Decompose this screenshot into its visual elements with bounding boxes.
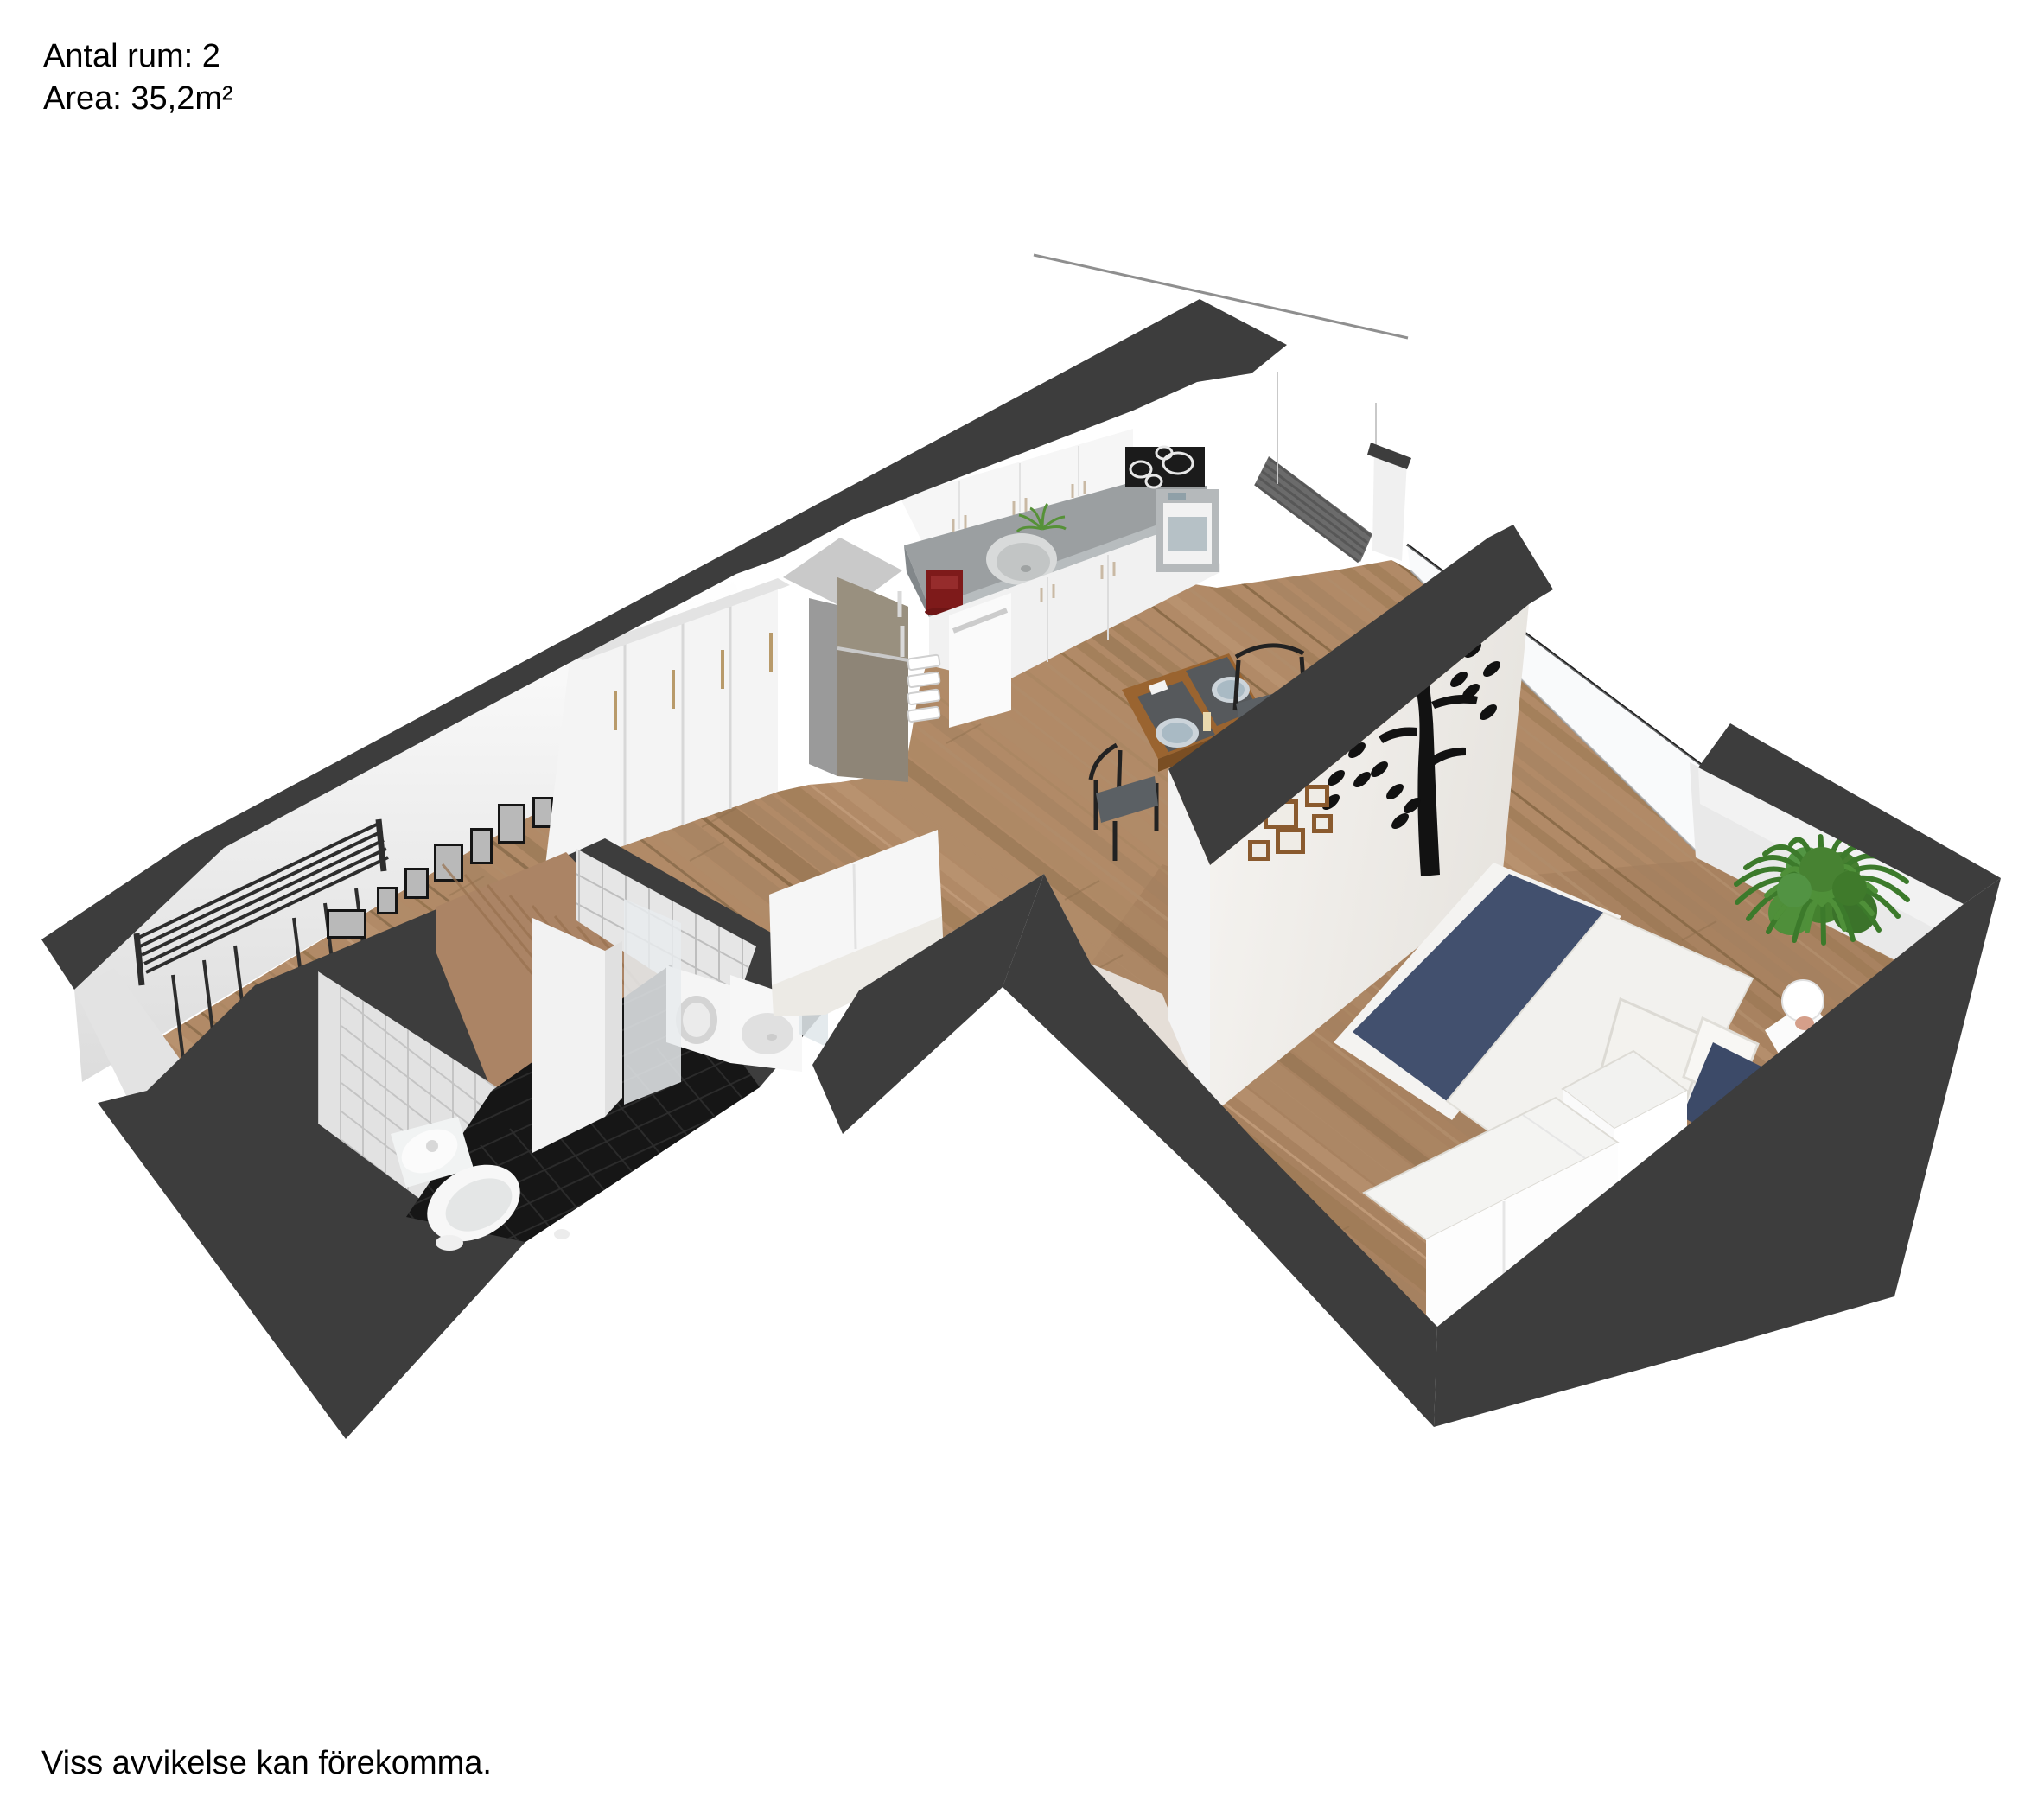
svg-text:Area: 35,2m²: Area: 35,2m² bbox=[43, 80, 233, 117]
svg-text:Antal rum: 2: Antal rum: 2 bbox=[43, 38, 220, 74]
svg-text:Viss avvikelse kan förekomma.: Viss avvikelse kan förekomma. bbox=[41, 1745, 492, 1781]
